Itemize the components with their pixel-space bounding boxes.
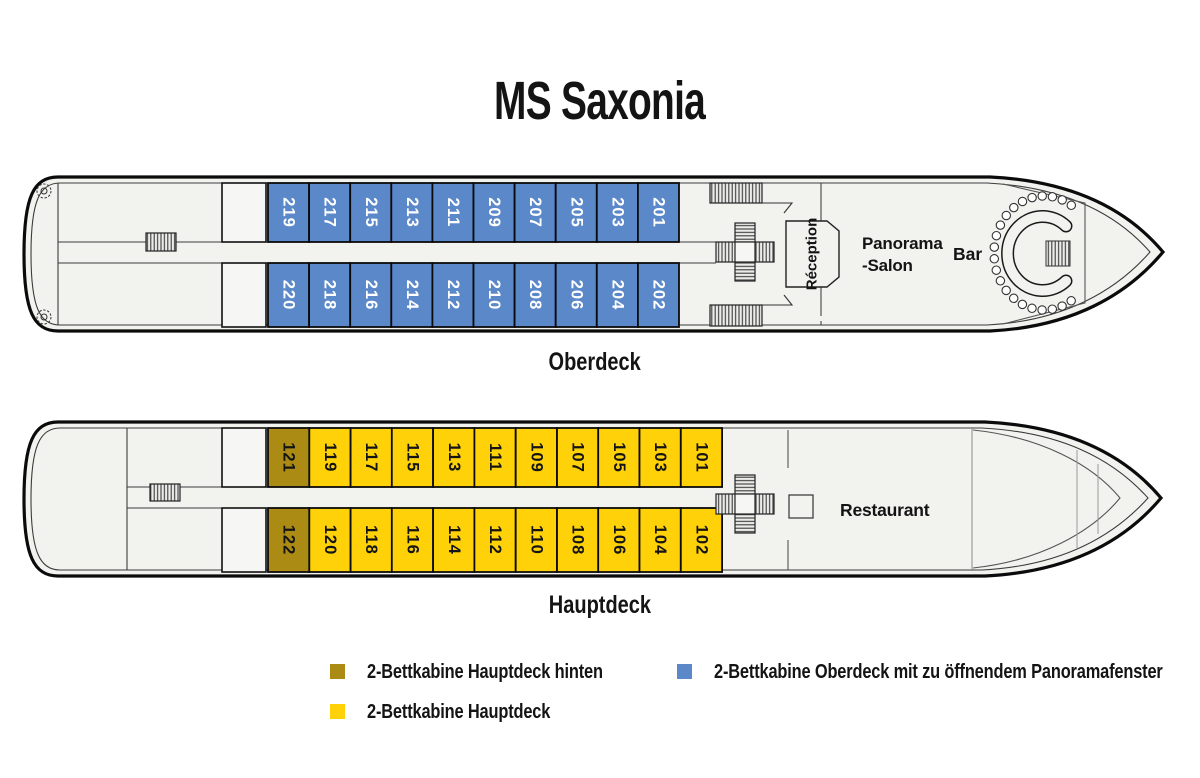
panorama-salon-label-line2: -Salon bbox=[862, 256, 913, 275]
cabin-203-label: 203 bbox=[608, 197, 626, 228]
legend-swatch-hauptdeck-hinten bbox=[330, 664, 345, 679]
cabin-214-label: 214 bbox=[403, 280, 421, 311]
cabin-218-label: 218 bbox=[321, 280, 339, 311]
cabin-122-label: 122 bbox=[280, 525, 298, 556]
cabin-106-label: 106 bbox=[610, 525, 628, 556]
bar-stool-icon bbox=[1018, 300, 1026, 308]
oberdeck-midship-stairs-icon bbox=[146, 233, 176, 251]
bar-stool-icon bbox=[1028, 193, 1036, 201]
legend-item-hauptdeck-hinten: 2-Bettkabine Hauptdeck hinten bbox=[330, 663, 655, 681]
bar-stool-icon bbox=[990, 243, 998, 251]
cabin-206-label: 206 bbox=[567, 280, 585, 311]
hauptdeck-deck-label: Hauptdeck bbox=[480, 591, 720, 620]
legend-label-hauptdeck: 2-Bettkabine Hauptdeck bbox=[367, 703, 550, 721]
cabin-104-label: 104 bbox=[651, 525, 669, 556]
oberdeck-deck-label: Oberdeck bbox=[475, 348, 715, 377]
bar-stool-icon bbox=[1010, 294, 1018, 302]
cabin-112-label: 112 bbox=[486, 525, 504, 555]
cabin-211-label: 211 bbox=[444, 198, 462, 228]
cabin-105-label: 105 bbox=[610, 442, 628, 473]
bar-stool-icon bbox=[992, 266, 1000, 274]
cabin-204-label: 204 bbox=[608, 280, 626, 311]
legend-label-hauptdeck-hinten: 2-Bettkabine Hauptdeck hinten bbox=[367, 663, 603, 681]
cabin-210-label: 210 bbox=[485, 280, 503, 311]
legend-label-oberdeck: 2-Bettkabine Oberdeck mit zu öffnendem P… bbox=[714, 663, 1163, 681]
cabin-119-label: 119 bbox=[321, 443, 339, 473]
cabin-213-label: 213 bbox=[403, 197, 421, 228]
cabin-108-label: 108 bbox=[569, 525, 587, 556]
cabin-215-label: 215 bbox=[362, 197, 380, 228]
cabin-107-label: 107 bbox=[569, 442, 587, 473]
bar-stool-icon bbox=[996, 277, 1004, 285]
bar-stool-icon bbox=[1010, 203, 1018, 211]
cabin-207-label: 207 bbox=[526, 197, 544, 228]
bar-stool-icon bbox=[1002, 286, 1010, 294]
cabin-109-label: 109 bbox=[527, 442, 545, 473]
legend-swatch-oberdeck bbox=[677, 664, 692, 679]
bar-stool-icon bbox=[990, 255, 998, 263]
bar-stool-icon bbox=[1058, 302, 1066, 310]
cabin-202-label: 202 bbox=[650, 280, 668, 311]
cabin-114-label: 114 bbox=[445, 525, 463, 555]
cabin-212-label: 212 bbox=[444, 280, 462, 311]
cabin-116-label: 116 bbox=[404, 525, 422, 555]
cabin-219-label: 219 bbox=[280, 197, 298, 228]
cabin-118-label: 118 bbox=[362, 525, 380, 555]
cabin-102-label: 102 bbox=[692, 525, 710, 556]
legend-item-oberdeck: 2-Bettkabine Oberdeck mit zu öffnendem P… bbox=[677, 663, 1200, 681]
bar-stool-icon bbox=[1048, 305, 1056, 313]
cabin-121-label: 121 bbox=[280, 442, 298, 473]
cabin-115-label: 115 bbox=[404, 443, 422, 473]
cabin-110-label: 110 bbox=[527, 525, 545, 555]
cabin-220-label: 220 bbox=[280, 280, 298, 311]
legend-item-hauptdeck: 2-Bettkabine Hauptdeck bbox=[330, 703, 590, 721]
cabin-111-label: 111 bbox=[486, 443, 504, 472]
legend-swatch-hauptdeck bbox=[330, 704, 345, 719]
oberdeck-service-cell-top bbox=[222, 183, 266, 242]
cabin-205-label: 205 bbox=[567, 197, 585, 228]
cabin-217-label: 217 bbox=[321, 197, 339, 228]
hauptdeck-plan: 1211191171151131111091071051031011221201… bbox=[24, 422, 1161, 576]
hauptdeck-service-cell-top bbox=[222, 428, 266, 487]
oberdeck-service-cell-bottom bbox=[222, 263, 266, 327]
cabin-113-label: 113 bbox=[445, 443, 463, 473]
bar-stool-icon bbox=[992, 232, 1000, 240]
bar-stool-icon bbox=[1028, 304, 1036, 312]
cabin-103-label: 103 bbox=[651, 442, 669, 473]
cabin-216-label: 216 bbox=[362, 280, 380, 311]
restaurant-label: Restaurant bbox=[840, 500, 930, 520]
cabin-201-label: 201 bbox=[650, 197, 668, 228]
oberdeck-plan: 2192172152132112092072052032012202182162… bbox=[24, 177, 1163, 331]
bar-stool-icon bbox=[1067, 201, 1075, 209]
hauptdeck-service-cell-bottom bbox=[222, 508, 266, 572]
cabin-120-label: 120 bbox=[321, 525, 339, 556]
bar-stool-icon bbox=[1002, 211, 1010, 219]
bar-stool-icon bbox=[1038, 192, 1046, 200]
bar-stool-icon bbox=[1018, 197, 1026, 205]
hauptdeck-midship-stairs-icon bbox=[150, 484, 180, 501]
cabin-101-label: 101 bbox=[692, 442, 710, 473]
panorama-salon-label-line1: Panorama bbox=[862, 234, 943, 253]
bar-stool-icon bbox=[1067, 297, 1075, 305]
bar-stool-icon bbox=[1048, 193, 1056, 201]
cabin-208-label: 208 bbox=[526, 280, 544, 311]
cabin-117-label: 117 bbox=[362, 443, 380, 473]
bar-stool-icon bbox=[1058, 196, 1066, 204]
reception-label: Réception bbox=[804, 218, 821, 291]
cabin-209-label: 209 bbox=[485, 197, 503, 228]
bar-label: Bar bbox=[953, 244, 982, 264]
bar-stool-icon bbox=[996, 221, 1004, 229]
bar-stool-icon bbox=[1038, 306, 1046, 314]
